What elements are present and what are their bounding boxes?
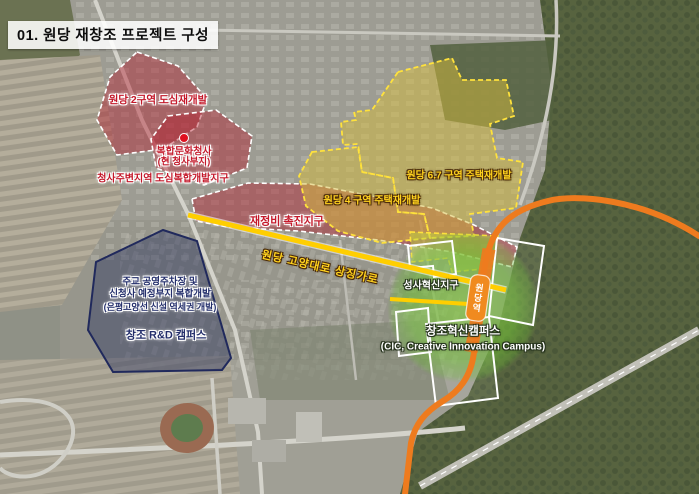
label-blue-parking-3: (은평고양선 신설 역세권 개발) [104,302,217,312]
label-cic-2: (CIC, Creative Innovation Campus) [381,341,545,353]
label-cic-1: 창조혁신캠퍼스 [426,325,500,338]
label-blue-parking-2: 신청사 예정부지 복합개발 [109,290,210,301]
label-blue-campus: 창조 R&D 캠퍼스 [126,330,207,343]
label-red-zone2: 원당 2구역 도심재개발 [109,94,208,106]
complex-site-dot [180,134,189,143]
page-title: 01. 원당 재창조 프로젝트 구성 [8,21,218,49]
label-red-surround: 청사주변지역 도심복합개발지구 [97,173,229,185]
label-yellow-zone4: 원당 4 구역 주택재개발 [324,195,421,207]
label-seongsa-zone: 성사혁신지구 [403,280,458,292]
campus-parcel-2 [489,238,544,325]
label-yellow-zone67: 원당 6.7 구역 주택재개발 [406,170,511,182]
label-blue-parking-1: 주교 공영주차장 및 [122,278,197,289]
label-red-promotion: 재정비 촉진지구 [250,216,324,229]
zone-overlays [0,0,699,494]
project-map: 01. 원당 재창조 프로젝트 구성 원당 2구역 도심재개발 복합문화청사 (… [0,0,699,494]
label-red-complex-2: (현 청사부지) [158,158,211,169]
